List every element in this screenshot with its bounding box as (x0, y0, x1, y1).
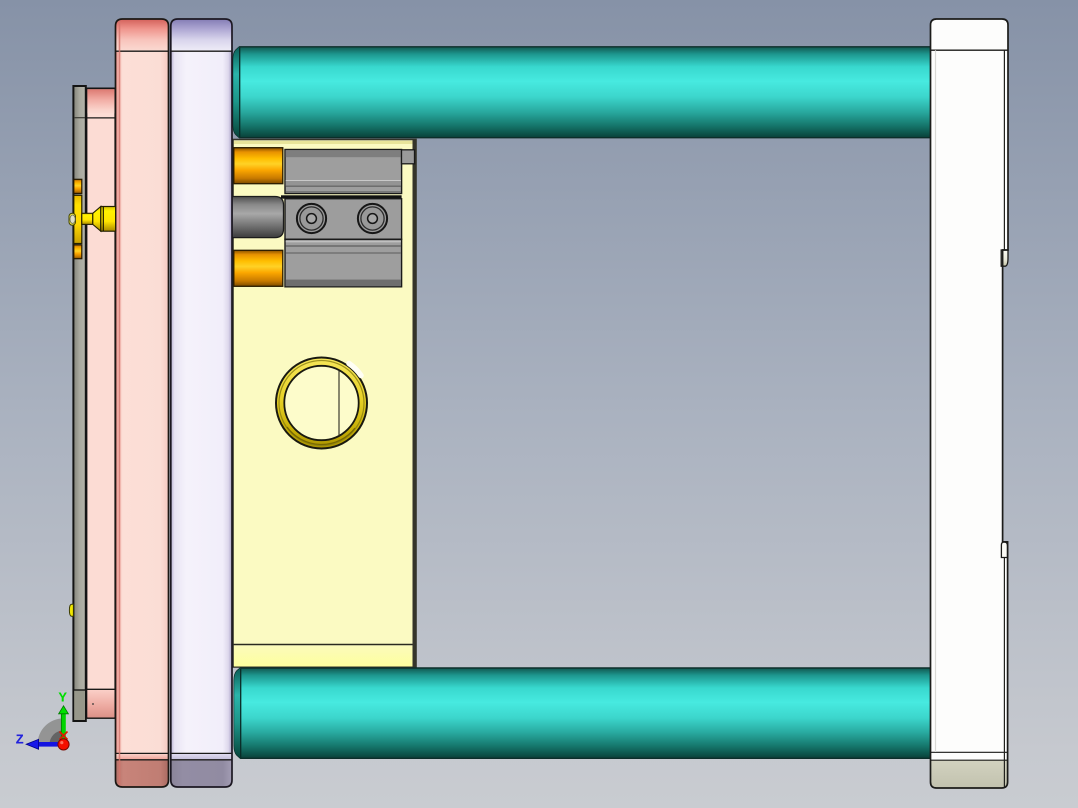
svg-text:Z: Z (16, 733, 24, 749)
svg-text:Y: Y (59, 691, 68, 707)
